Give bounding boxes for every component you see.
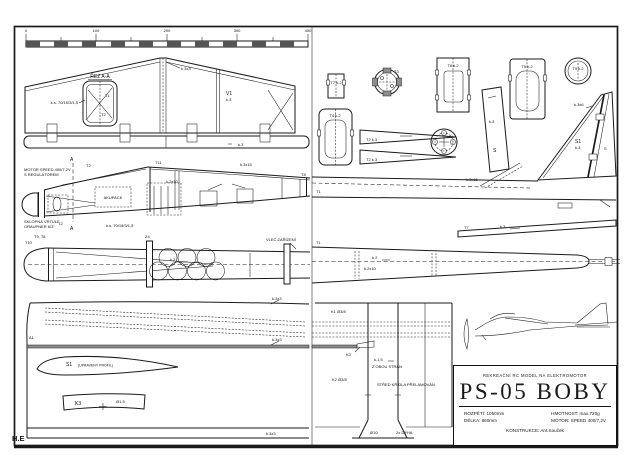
- section-label: ŘEZ A-A: [90, 72, 110, 80]
- spec-motor-label: MOTOR:: [551, 418, 569, 423]
- fin-spar-material: k.3: [489, 119, 495, 124]
- fairing-wedges: T2 k.3 T2 k.3: [360, 130, 456, 164]
- battery-label: AKUPACK: [104, 195, 123, 200]
- fin-spar-label: S: [493, 148, 497, 154]
- t6-former-label: T6 k.2: [447, 63, 459, 68]
- wedge-label-2: T2 k.3: [366, 157, 378, 162]
- wedge-label-1: T2 k.3: [366, 137, 378, 142]
- boom-longeron-label: k.3x15: [466, 177, 479, 182]
- ruler-tick-400: 400: [305, 28, 312, 33]
- spec-weight-label: HMOTNOST:: [551, 411, 578, 416]
- ruler-tick-300: 300: [234, 28, 241, 33]
- aircraft-silhouette: [464, 303, 617, 349]
- designer-credit: KONSTRUKCE: Ant.Souček: [454, 428, 616, 433]
- spinner-front-view: [431, 129, 457, 155]
- boom-top-view: T1 k.2 k.2x10: [312, 240, 620, 283]
- center-note-label: STŘED KŘÍDLA PŘELAMOVÁN: [377, 382, 435, 387]
- spec-length-label: DÉLKA:: [464, 418, 480, 423]
- both-sides-label: Z OBOU STRAN: [372, 364, 402, 369]
- ruler-tick-0: 0: [25, 28, 28, 33]
- pushrod-label: k.2: [170, 257, 176, 262]
- nose-formers-label: T9, T8: [34, 234, 46, 239]
- section-marker-bottom: A: [70, 226, 74, 232]
- elevator-material: k.3: [500, 224, 506, 229]
- k3-center-label: K3: [346, 352, 352, 357]
- k3-part-label: K3: [75, 401, 81, 407]
- former-t9: T9 k.2: [565, 58, 591, 84]
- t9-former-label: T9 k.2: [572, 66, 584, 71]
- te-strip-label: k.3: [238, 142, 244, 147]
- fin-spar-part: k.3 S: [482, 87, 509, 172]
- boom-top-label: T1: [316, 240, 321, 245]
- spec-table: ROZPĚTÍ: 1050mm DÉLKA: 860mm HMOTNOST: m…: [454, 411, 616, 425]
- fin-s1-material: k.3: [575, 145, 581, 150]
- former-t4: T4 k.2: [318, 109, 354, 165]
- spec-weight: HMOTNOST: max.720g: [551, 411, 606, 418]
- spec-wingspan: ROZPĚTÍ: 1050mm: [464, 411, 504, 418]
- nose-t2-label: T2: [58, 221, 63, 226]
- title-rule: [459, 406, 611, 407]
- sheet-thickness-label: k.1,5: [374, 357, 383, 362]
- elevator-label: T7: [464, 225, 469, 230]
- sheet-note: k.s. 70/15/3/1,5: [106, 223, 134, 228]
- title-block: REKREAČNÍ RC MODEL NA ELEKTROMOTOR PS-05…: [453, 365, 617, 446]
- rib-material-note: k.s. 70/15/3/1,5: [51, 100, 79, 105]
- spec-wingspan-label: ROZPĚTÍ:: [464, 411, 485, 416]
- dia10-label: Ø10: [370, 430, 378, 435]
- designer-label: KONSTRUKCE:: [506, 428, 539, 433]
- wing-center-section-view: K1 Ø3/8 K2 Ø3/8 K3 k.1,5 Z OBOU STRAN ST…: [312, 303, 452, 438]
- te-stock-label: k.3x3: [266, 431, 276, 436]
- fuselage-side-view: MOTOR SPEED 400/7,2V S REGULÁTOREM SKLOP…: [22, 157, 310, 232]
- wing-plan-view: ŘEZ A-A k.3x3 T1 T2 k.s. 70/15/3/1,5 V1 …: [24, 58, 309, 148]
- fin-stock-note: k.3x6: [574, 102, 584, 107]
- airfoil-note: (UPRAVENÝ PROFIL): [78, 364, 113, 368]
- spec-column-left: ROZPĚTÍ: 1050mm DÉLKA: 860mm: [464, 411, 504, 425]
- deck-stock-label: k.2x10: [166, 179, 179, 184]
- title-block-header: REKREAČNÍ RC MODEL NA ELEKTROMOTOR: [454, 373, 616, 378]
- former-t6: T6 k.2: [436, 58, 471, 112]
- plan-title: PS-05 BOBY: [454, 380, 616, 404]
- towhook-label: VLEČ.ZAŘÍZENÍ: [266, 237, 297, 242]
- spec-weight-value: max.720g: [580, 411, 600, 416]
- a1-label: A1: [29, 335, 35, 340]
- t11-label: T11: [155, 160, 162, 165]
- longeron-label: k.3x15: [240, 162, 253, 167]
- former-t7: T7 k.2: [327, 74, 346, 98]
- dyha-label: 2x DÝHA: [396, 430, 413, 435]
- spec-wingspan-value: 1050mm: [486, 411, 504, 416]
- scale-ruler: 0 100 200 300 400: [25, 28, 312, 47]
- k3-dia-label: Ø1,5: [116, 399, 125, 404]
- prop-note-line2: GRAUPNER 6/3": [24, 224, 55, 229]
- wing-panel-view: k.3x3 k.3x3 A1 k.3x3 S1 (UPRAVENÝ PROFIL…: [27, 296, 309, 438]
- spec-motor-value: SPEED 400/7,2V: [571, 418, 606, 423]
- airfoil-label: S1: [66, 362, 72, 368]
- boom-side-view: T1 k.3x15: [312, 163, 616, 208]
- t8-label: T8: [301, 172, 306, 177]
- rib-t2-label: T2: [101, 112, 106, 117]
- ruler-tick-200: 200: [164, 28, 171, 33]
- t10-label: T10: [25, 240, 33, 245]
- t5-former-label: T5 k.2: [521, 64, 533, 69]
- fuselage-top-view: T9, T8 T10 Z4 k.2 VLEČ.ZAŘÍZENÍ: [24, 234, 310, 287]
- rib-v1-material: k.3: [226, 97, 232, 102]
- boom-stock-label: k.2x10: [364, 266, 377, 271]
- ruler-tick-100: 100: [93, 28, 100, 33]
- k1-rod-label: K1 Ø3/8: [331, 309, 346, 314]
- former-t3-motor: T3: [373, 68, 402, 96]
- z4-label: Z4: [145, 234, 150, 239]
- k2-rod-label: K2 Ø3/8: [332, 377, 347, 382]
- canopy-t2-label: T2: [86, 163, 91, 168]
- spar-stock-label-2: k.3x3: [272, 337, 282, 342]
- boom-side-label: T1: [316, 189, 321, 194]
- t4-former-label: T4 k.2: [329, 113, 341, 118]
- fin-side-view: S1 k.3 S k.3x6: [538, 92, 616, 180]
- spec-length-value: 860mm: [482, 418, 497, 423]
- le-stock-label: k.3x3: [181, 66, 191, 71]
- spec-motor: MOTOR: SPEED 400/7,2V: [551, 418, 606, 425]
- elevator-side-view: T7 k.3: [458, 220, 616, 237]
- rib-t1-label: T1: [105, 93, 110, 98]
- spar-stock-label-1: k.3x3: [272, 296, 282, 301]
- t3-former-label: T3: [394, 69, 399, 74]
- watermark-initials: H.E: [12, 434, 25, 443]
- designer-value: Ant.Souček: [540, 428, 564, 433]
- t7-former-label: T7 k.2: [330, 80, 342, 85]
- motor-note-line2: S REGULÁTOREM: [24, 172, 59, 177]
- rudder-strip-label: S: [604, 146, 607, 151]
- boom-sheet-label: k.2: [372, 255, 378, 260]
- plan-sheet: 0 100 200 300 400 ŘEZ A-A k.3x3 T1 T2 k.…: [0, 0, 630, 472]
- section-marker-top: A: [70, 157, 74, 163]
- spec-column-right: HMOTNOST: max.720g MOTOR: SPEED 400/7,2V: [551, 411, 606, 425]
- former-t5: T5 k.2: [509, 59, 547, 119]
- spec-length: DÉLKA: 860mm: [464, 418, 504, 425]
